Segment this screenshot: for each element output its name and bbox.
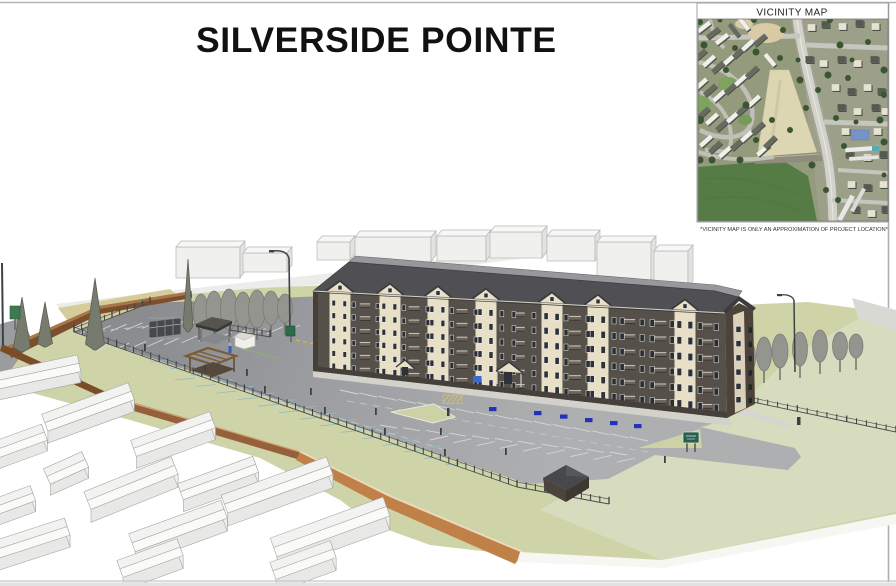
svg-text:VICINITY MAP: VICINITY MAP	[756, 8, 827, 19]
svg-text:*VICINITY MAP IS ONLY AN APPRO: *VICINITY MAP IS ONLY AN APPROXIMATION O…	[700, 227, 888, 233]
svg-text:SILVERSIDE POINTE: SILVERSIDE POINTE	[196, 20, 557, 60]
